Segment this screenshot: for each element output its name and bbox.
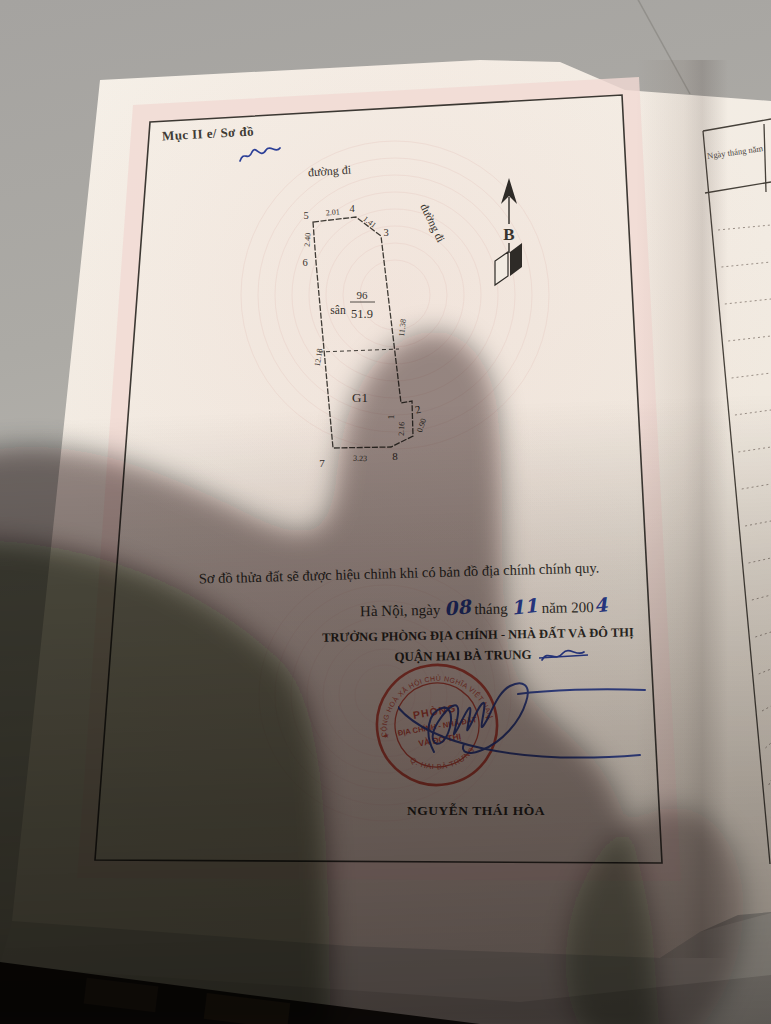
handwritten-year-digit: 4 (594, 604, 607, 605)
yard-building-divider (319, 349, 399, 352)
date-middle: tháng (474, 601, 508, 618)
measure-right-lower: 2.16 (397, 422, 407, 436)
measure-right-upper: 11.38 (397, 318, 408, 337)
yard-label: sân (330, 304, 346, 316)
signer-name: NGUYỄN THÁI HÒA (340, 803, 612, 819)
date-prefix: Hà Nội, ngày (360, 602, 441, 619)
measure-notch: 0.90 (415, 417, 428, 433)
signature (398, 650, 653, 775)
road-label-side: đường đi (417, 202, 447, 245)
handwritten-month: 11 (511, 605, 537, 608)
parcel-area: 51.9 (351, 307, 373, 321)
right-page-dotted-rows (718, 225, 771, 859)
vertex-4-label: 4 (349, 203, 355, 214)
north-arrow: B (495, 178, 522, 285)
photo-of-land-certificate: Mục II e/ Sơ đồ đường đi 5 4 3 6 1 2 7 8… (0, 0, 771, 1024)
north-arrow-fletch-left (495, 252, 508, 285)
vertex-2-label: 2 (414, 403, 422, 416)
vertex-7-label: 7 (319, 457, 325, 469)
measure-slant: 1.41 (361, 214, 378, 230)
parcel-number: 96 (357, 289, 369, 301)
measure-top: 2.01 (325, 207, 340, 217)
vertex-6-label: 6 (302, 257, 307, 268)
measure-bottom: 3.23 (353, 454, 367, 463)
vertex-1-label: 1 (386, 415, 396, 420)
stamp-star-left: ★ (382, 731, 389, 739)
building-label: G1 (352, 390, 368, 405)
handwritten-day: 08 (444, 606, 470, 609)
date-suffix: năm 200 (541, 599, 593, 616)
north-label: B (503, 225, 514, 244)
right-page-table-borders (703, 119, 771, 864)
pen-scribble-mark (237, 144, 283, 168)
measure-left-upper: 2.40 (303, 233, 313, 248)
vertex-5-label: 5 (303, 210, 308, 221)
measure-left-lower: 12.18 (313, 348, 325, 367)
north-arrow-fletch-right (510, 243, 522, 276)
vertex-8-label: 8 (392, 450, 398, 462)
parcel-diagram: 5 4 3 6 1 2 7 8 2.01 1.41 2.40 12.18 11.… (280, 150, 550, 490)
vertex-3-label: 3 (383, 227, 388, 238)
